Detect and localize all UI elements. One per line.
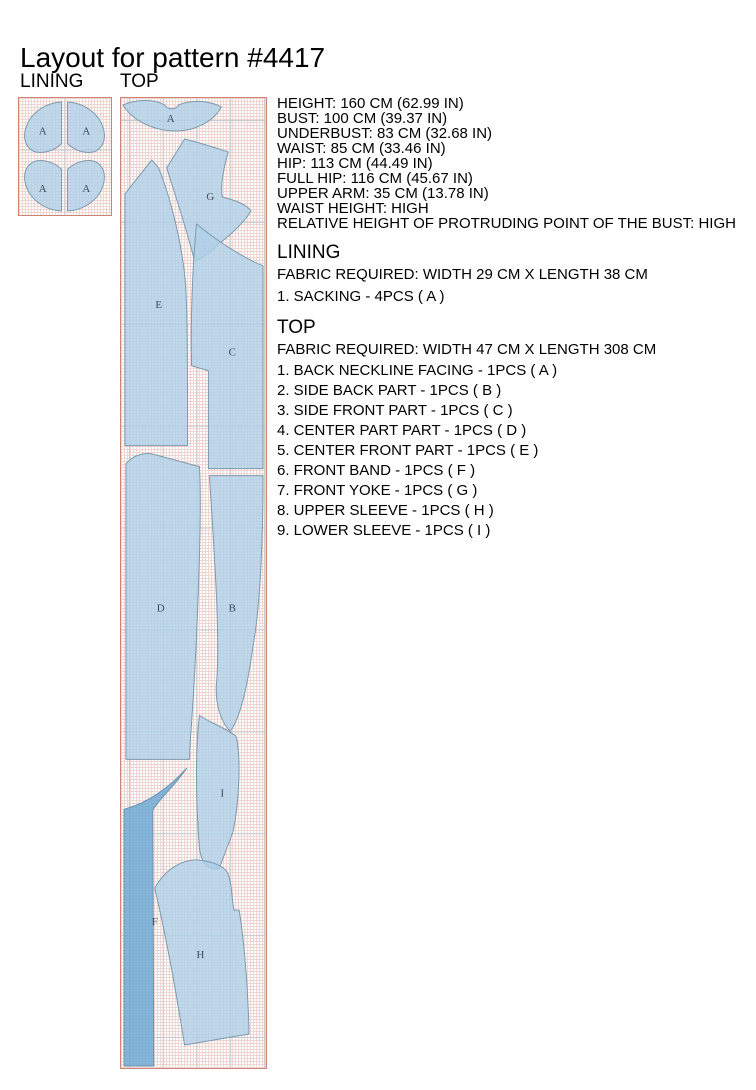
lining-piece-label: A [39,126,47,138]
top-piece-label-f: F [152,916,158,928]
piece-i-lower-sleeve [196,715,239,868]
measurement-line: UPPER ARM: 35 CM (13.78 IN) [277,186,736,201]
top-piece-label-i: I [220,787,224,799]
top-piece-item: 8. UPPER SLEEVE - 1PCS ( H ) [277,501,557,521]
lining-piece-item: 1. SACKING - 4PCS ( A ) [277,287,445,307]
measurement-line: RELATIVE HEIGHT OF PROTRUDING POINT OF T… [277,216,736,231]
lining-piece-label: A [39,183,47,195]
top-layout-svg: A G E C D B I F H [121,98,266,1068]
top-pieces-list: 1. BACK NECKLINE FACING - 1PCS ( A ) 2. … [277,361,557,541]
top-piece-item: 2. SIDE BACK PART - 1PCS ( B ) [277,381,557,401]
measurement-line: FULL HIP: 116 CM (45.67 IN) [277,171,736,186]
measurement-line: UNDERBUST: 83 CM (32.68 IN) [277,126,736,141]
top-piece-item: 6. FRONT BAND - 1PCS ( F ) [277,461,557,481]
lining-cutting-layout: A A A A [18,97,112,216]
top-piece-item: 5. CENTER FRONT PART - 1PCS ( E ) [277,441,557,461]
top-piece-label-b: B [229,602,236,614]
top-cutting-layout: A G E C D B I F H [120,97,267,1069]
top-piece-item: 9. LOWER SLEEVE - 1PCS ( I ) [277,521,557,541]
top-diagram-label: TOP [120,71,159,92]
top-piece-item: 1. BACK NECKLINE FACING - 1PCS ( A ) [277,361,557,381]
measurements-list: HEIGHT: 160 CM (62.99 IN) BUST: 100 CM (… [277,96,736,231]
page-title: Layout for pattern #4417 [20,43,325,73]
top-piece-label-e: E [155,299,162,311]
top-piece-item: 7. FRONT YOKE - 1PCS ( G ) [277,481,557,501]
top-piece-label-h: H [197,949,205,961]
piece-c-side-front-part [191,224,263,469]
top-piece-label-g: G [206,191,214,203]
top-piece-item: 4. CENTER PART PART - 1PCS ( D ) [277,421,557,441]
lining-pieces-list: 1. SACKING - 4PCS ( A ) [277,287,445,307]
top-piece-item: 3. SIDE FRONT PART - 1PCS ( C ) [277,401,557,421]
piece-b-side-back-part [209,476,263,732]
lining-piece-label: A [82,126,90,138]
lining-section-heading: LINING [277,242,340,264]
measurement-line: WAIST: 85 CM (33.46 IN) [277,141,736,156]
lining-piece-label: A [82,183,90,195]
top-fabric-required: FABRIC REQUIRED: WIDTH 47 CM X LENGTH 30… [277,342,656,357]
top-piece-label-c: C [229,347,236,359]
measurement-line: WAIST HEIGHT: HIGH [277,201,736,216]
lining-layout-svg: A A A A [19,98,111,215]
top-piece-label-d: D [157,602,165,614]
measurement-line: HEIGHT: 160 CM (62.99 IN) [277,96,736,111]
lining-diagram-label: LINING [20,71,83,92]
top-piece-label-a: A [167,113,175,125]
measurement-line: HIP: 113 CM (44.49 IN) [277,156,736,171]
top-section-heading: TOP [277,317,316,339]
measurement-line: BUST: 100 CM (39.37 IN) [277,111,736,126]
lining-fabric-required: FABRIC REQUIRED: WIDTH 29 CM X LENGTH 38… [277,267,648,282]
